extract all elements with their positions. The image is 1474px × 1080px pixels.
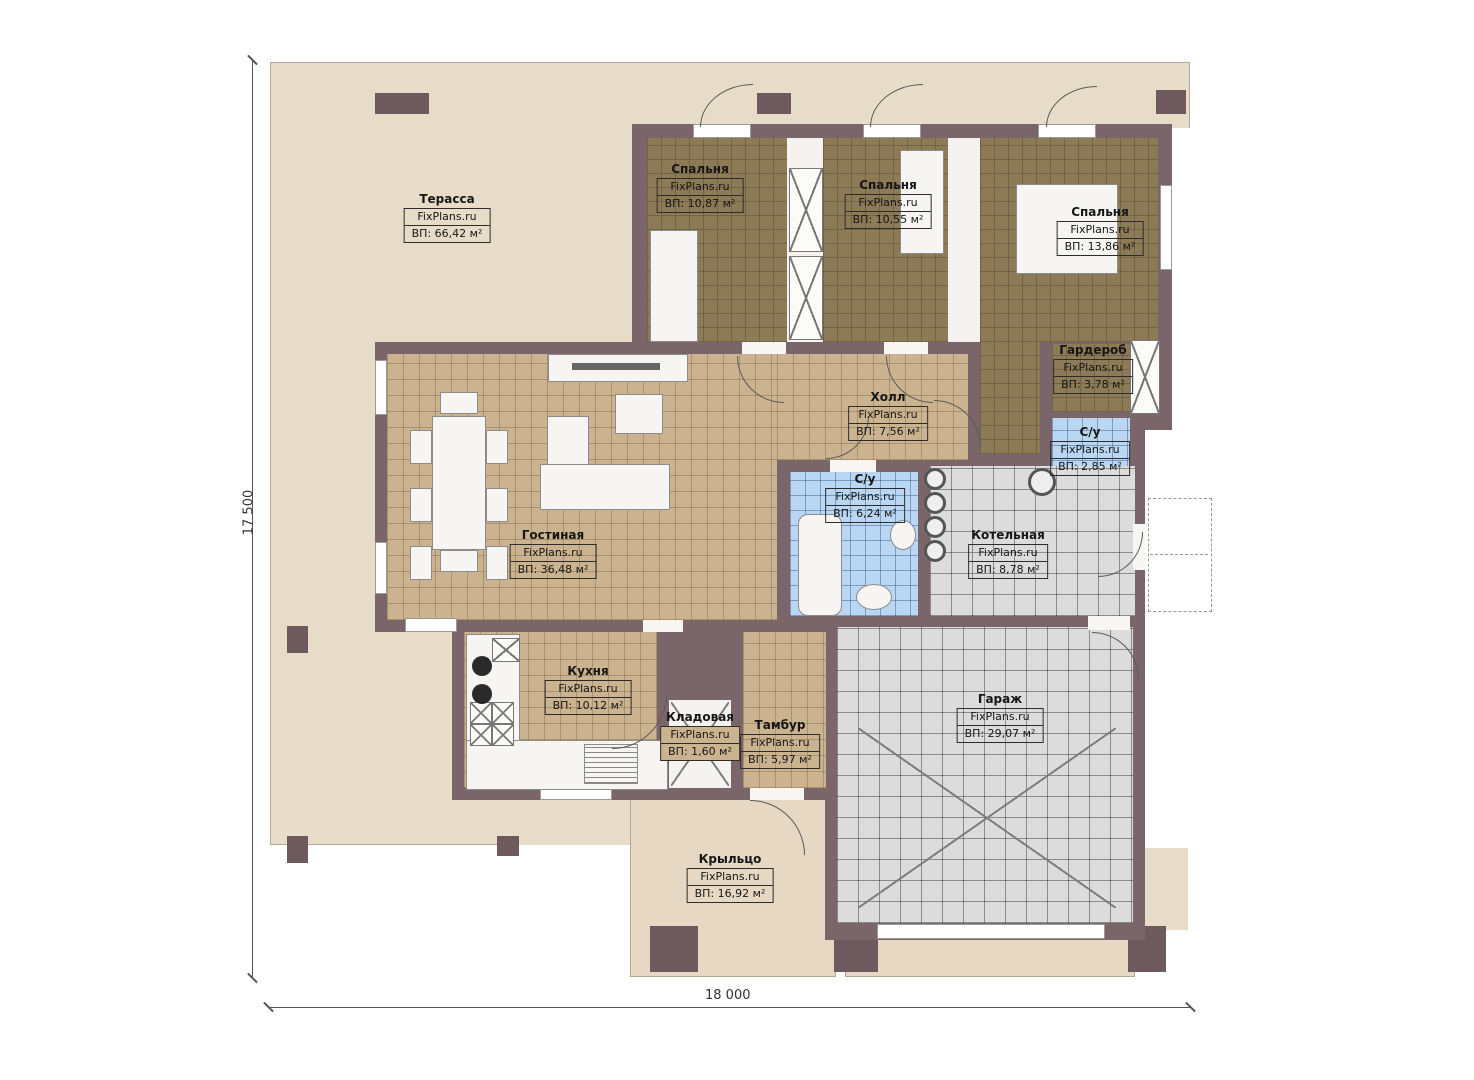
door-opening-kitchen (643, 620, 683, 632)
window-living-left-2 (375, 542, 387, 594)
terrace-column (287, 836, 308, 863)
dimension-label-vertical: 17 500 (241, 490, 256, 536)
tv (572, 363, 660, 370)
site-outline-left (270, 62, 271, 845)
terrace-column (375, 93, 429, 114)
bathtub (798, 514, 842, 616)
manifold-ring (924, 516, 946, 538)
room-label-garage: Гараж FixPlans.ru ВП: 29,07 м² (957, 692, 1044, 743)
window-living-left-1 (375, 360, 387, 415)
garage-gate (877, 924, 1105, 939)
bedroom-3-extension-floor (980, 338, 1040, 454)
brand-link: FixPlans.ru (658, 179, 743, 196)
dining-table (432, 416, 486, 550)
manifold-ring (924, 540, 946, 562)
floor-plan-canvas: Терасса FixPlans.ru ВП: 66,42 м² Спальня… (0, 0, 1474, 1080)
exterior-steps (1148, 498, 1212, 612)
room-label-boiler: Котельная FixPlans.ru ВП: 8,78 м² (968, 528, 1048, 579)
room-label-stoop: Крыльцо FixPlans.ru ВП: 16,92 м² (687, 852, 774, 903)
brand-link: FixPlans.ru (958, 709, 1043, 726)
door-opening-vestibule (750, 788, 804, 800)
terrace-column (1156, 90, 1186, 114)
brand-link: FixPlans.ru (405, 209, 490, 226)
window-living-bottom (405, 618, 457, 632)
appliance (492, 702, 514, 724)
room-label-living: Гостиная FixPlans.ru ВП: 36,48 м² (510, 528, 597, 579)
sofa-section (540, 464, 670, 510)
toilet (890, 520, 916, 550)
chair (410, 488, 432, 522)
brand-link: FixPlans.ru (846, 195, 931, 212)
exterior-steps-tread (1150, 554, 1208, 555)
brand-link: FixPlans.ru (1051, 442, 1129, 459)
wardrobe-closet (1130, 340, 1160, 414)
kitchen-sink-unit (492, 638, 520, 662)
chair (486, 546, 508, 580)
terrace-column (757, 93, 791, 114)
chair (440, 392, 478, 414)
room-label-wc-big: С/у FixPlans.ru ВП: 6,24 м² (825, 472, 905, 523)
window-bedroom-3-side (1160, 185, 1172, 270)
brand-link: FixPlans.ru (546, 681, 631, 698)
brand-link: FixPlans.ru (1058, 222, 1143, 239)
room-label-bedroom-3: Спальня FixPlans.ru ВП: 13,86 м² (1057, 205, 1144, 256)
bed (650, 230, 698, 342)
site-outline-right (1189, 62, 1190, 128)
dimension-label-horizontal: 18 000 (705, 988, 751, 1003)
terrace-column (497, 836, 519, 856)
brand-link: FixPlans.ru (969, 545, 1047, 562)
stove-burner (472, 656, 492, 676)
appliance (492, 724, 514, 746)
manifold-ring (924, 492, 946, 514)
chair (486, 488, 508, 522)
door-opening-bedroom-2 (884, 342, 928, 354)
brand-link: FixPlans.ru (741, 735, 819, 752)
brand-link: FixPlans.ru (1054, 360, 1132, 377)
chair (410, 430, 432, 464)
dimension-line-horizontal (268, 1007, 1190, 1008)
garage-cross-marking (858, 728, 1116, 908)
manifold-ring (924, 468, 946, 490)
room-label-vestibule: Тамбур FixPlans.ru ВП: 5,97 м² (740, 718, 820, 769)
appliance (470, 724, 492, 746)
site-outline-top (270, 62, 1190, 63)
porch-pier (650, 926, 698, 972)
chair (410, 546, 432, 580)
door-opening-garage (1088, 616, 1130, 630)
coffee-table (615, 394, 663, 434)
door-opening-bedroom-1 (742, 342, 786, 354)
closet (789, 256, 823, 340)
brand-link: FixPlans.ru (826, 489, 904, 506)
chair (486, 430, 508, 464)
terrace-column (287, 626, 308, 653)
dishwasher (584, 744, 638, 784)
door-opening-wc-big (830, 460, 876, 472)
appliance (470, 702, 492, 724)
chair (440, 550, 478, 572)
room-label-wc-small: С/у FixPlans.ru ВП: 2,85 м² (1050, 425, 1130, 476)
room-label-bedroom-2: Спальня FixPlans.ru ВП: 10,55 м² (845, 178, 932, 229)
brand-link: FixPlans.ru (688, 869, 773, 886)
room-label-pantry: Кладовая FixPlans.ru ВП: 1,60 м² (660, 710, 740, 761)
closet (789, 168, 823, 252)
brand-link: FixPlans.ru (849, 407, 927, 424)
hall-strip-floor (948, 138, 980, 342)
room-label-bedroom-1: Спальня FixPlans.ru ВП: 10,87 м² (657, 162, 744, 213)
brand-link: FixPlans.ru (661, 727, 739, 744)
room-label-kitchen: Кухня FixPlans.ru ВП: 10,12 м² (545, 664, 632, 715)
stove-burner (472, 684, 492, 704)
room-label-hall: Холл FixPlans.ru ВП: 7,56 м² (848, 390, 928, 441)
room-label-wardrobe: Гардероб FixPlans.ru ВП: 3,78 м² (1053, 343, 1133, 394)
sink (856, 584, 892, 610)
room-label-terrace: Терасса FixPlans.ru ВП: 66,42 м² (404, 192, 491, 243)
brand-link: FixPlans.ru (511, 545, 596, 562)
